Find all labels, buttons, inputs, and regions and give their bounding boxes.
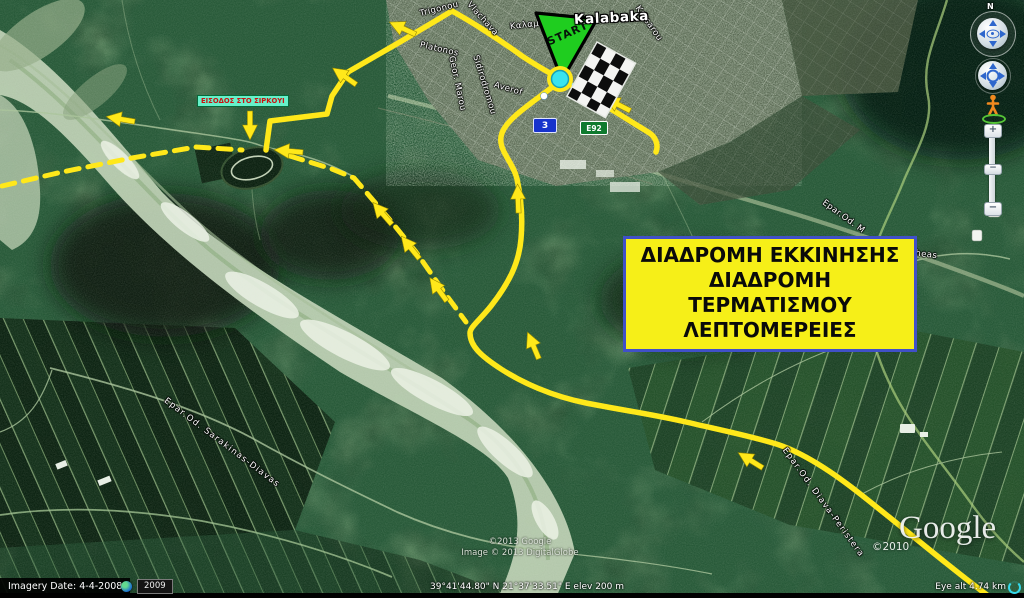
e92-route-shield: E92 — [580, 121, 608, 135]
move-joystick-ball[interactable] — [978, 61, 1007, 90]
look-up-arrow-icon[interactable] — [989, 20, 997, 26]
north-indicator[interactable]: N — [987, 2, 994, 11]
coordinates-readout: 39°41'44.80" N 21°37'33.51" E elev 200 m — [430, 582, 624, 592]
eye-altitude-readout: Eye alt 4.74 km — [935, 582, 1006, 592]
google-logo: Google — [899, 510, 996, 547]
move-joystick[interactable] — [975, 58, 1011, 94]
move-center-icon — [986, 69, 999, 82]
route-info-box: ΔΙΑΔΡΟΜΗ ΕΚΚΙΝΗΣΗΣ ΔΙΑΔΡΟΜΗ ΤΕΡΜΑΤΙΣΜΟΥ … — [623, 236, 917, 352]
attribution-line2: Image © 2013 DigitalGlobe — [440, 548, 600, 559]
look-right-arrow-icon[interactable] — [1000, 30, 1006, 38]
look-joystick[interactable] — [970, 11, 1016, 57]
route-box-line3: ΛΕΠΤΟΜΕΡΕΙΕΣ — [628, 318, 912, 343]
roundabout-marker — [547, 66, 573, 92]
zoom-in-button[interactable]: + — [984, 124, 1002, 138]
history-year-button[interactable]: 2009 — [137, 579, 173, 594]
map-attribution: ©2013 Google Image © 2013 DigitalGlobe — [440, 537, 600, 560]
zoom-handle[interactable]: − — [984, 164, 1002, 175]
move-down-arrow-icon[interactable] — [989, 82, 997, 88]
circuit-entrance-label: ΕΙΣΟΔΟΣ ΣΤΟ ΣΙΡΚΟΥΙ — [197, 95, 289, 107]
national-road-shield: 3 — [533, 118, 557, 133]
poi-place-icon — [972, 230, 982, 241]
zoom-slider[interactable]: + − − — [983, 124, 1001, 216]
pegman-base-ring — [982, 114, 1006, 124]
google-earth-viewport[interactable]: Trigonou Vlachava Καλαμ Katsarou Platono… — [0, 0, 1024, 598]
zoom-out-button[interactable]: − — [984, 202, 1002, 216]
navigation-controls: N — [968, 2, 1018, 217]
eye-icon — [986, 29, 999, 38]
streaming-indicator-icon — [1008, 581, 1021, 594]
route-box-line2: ΔΙΑΔΡΟΜΗ ΤΕΡΜΑΤΙΣΜΟΥ — [628, 268, 912, 318]
look-joystick-ball[interactable] — [977, 18, 1008, 49]
photo-icon — [541, 93, 548, 100]
look-down-arrow-icon[interactable] — [989, 41, 997, 47]
route-box-line1: ΔΙΑΔΡΟΜΗ ΕΚΚΙΝΗΣΗΣ — [628, 243, 912, 268]
imagery-date: Imagery Date: 4-4-2008 — [0, 578, 130, 596]
look-left-arrow-icon[interactable] — [979, 30, 985, 38]
pegman-icon[interactable] — [985, 94, 1001, 116]
historical-imagery-icon[interactable] — [121, 581, 132, 592]
move-right-arrow-icon[interactable] — [999, 72, 1005, 80]
attribution-line1: ©2013 Google — [440, 537, 600, 548]
